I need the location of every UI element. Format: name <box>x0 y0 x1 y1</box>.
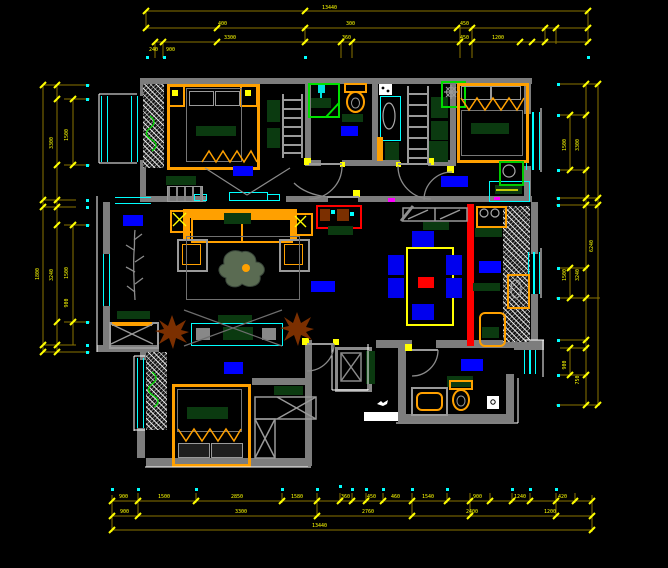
pillow-nw-b <box>215 91 240 106</box>
corner-rug <box>117 311 150 319</box>
bay-window-outer <box>101 96 108 162</box>
dimension-label: 900 <box>562 356 568 374</box>
living-window-west <box>103 254 110 306</box>
speaker-right <box>262 328 276 340</box>
wall-corridor-north-b <box>358 196 412 202</box>
dining-chair-east-b <box>446 278 462 298</box>
dimension-label: 2400 <box>466 509 478 515</box>
door-track-b <box>229 192 268 201</box>
dimension-label: 750 <box>575 371 581 389</box>
door-track-c <box>267 194 280 201</box>
corridor-marker <box>388 198 395 202</box>
room-label-kitchen <box>479 261 501 273</box>
dimension-label: 900 <box>166 47 175 53</box>
dining-chair-west-a <box>388 255 404 275</box>
lamp-nw-left <box>172 90 178 96</box>
north-marker-icon <box>377 400 388 406</box>
floor-plan-canvas: 1344040030045033003604501200240900150033… <box>0 0 668 568</box>
laundry-basin <box>380 96 401 141</box>
console-decor-a <box>320 209 330 221</box>
wall-bedroom1-south-b <box>286 196 312 202</box>
wall-corridor-north-a <box>310 196 328 202</box>
pillow-ne-b <box>491 86 521 100</box>
sideboard <box>401 206 467 221</box>
dimension-label: 1500 <box>562 136 568 154</box>
table-nw <box>167 186 203 202</box>
console-decor-b <box>337 209 349 221</box>
room-label-hallway <box>311 281 335 292</box>
corridor-rug <box>328 226 353 235</box>
toilet-main <box>345 84 366 112</box>
dimension-label: 1200 <box>544 509 556 515</box>
dimension-label: 900 <box>119 494 128 500</box>
stove <box>476 206 507 228</box>
dimension-label: 420 <box>558 494 567 500</box>
bath1-shelf <box>342 114 363 122</box>
dining-chair-east-a <box>446 255 462 275</box>
dimension-label: 1240 <box>514 494 526 500</box>
shower-bench <box>311 98 331 108</box>
blanket-s <box>187 407 228 419</box>
hinge-living <box>353 190 360 197</box>
hinge-bedroom2 <box>447 166 454 173</box>
bed-s-drawer-b <box>211 443 243 458</box>
dimension-label: 360 <box>341 494 350 500</box>
kitchen-window-b <box>534 252 540 294</box>
entry-mat <box>366 351 375 384</box>
dimension-label: 1800 <box>35 265 41 283</box>
sliding-door-bedroom1 <box>205 168 290 195</box>
sofa-cushion <box>224 213 251 224</box>
water-heater-panel <box>482 327 499 338</box>
dimension-label: 1500 <box>158 494 170 500</box>
hinge-entry <box>333 339 339 345</box>
hinge-bath2 <box>405 344 412 351</box>
wardrobe-s-shelf <box>274 386 303 395</box>
dimension-label: 400 <box>218 21 227 27</box>
dimension-label: 1500 <box>64 126 70 144</box>
dimension-label: 360 <box>342 35 351 41</box>
dimension-label: 3300 <box>49 134 55 152</box>
wall-bedroom3-west-lower <box>137 428 145 458</box>
tv-set <box>223 327 253 340</box>
hinge-bath1 <box>304 158 311 165</box>
kitchen-counter-item-b <box>473 283 500 291</box>
bay-window-inner <box>131 96 138 162</box>
pillow-ne-a <box>461 86 491 100</box>
dimension-label: 900 <box>64 294 70 312</box>
desk-chair-ne <box>499 161 524 186</box>
shelf-item-nw-a <box>267 100 280 122</box>
dimension-label: 900 <box>473 494 482 500</box>
hinge-tip-a <box>340 162 345 167</box>
dimension-label: 450 <box>460 35 469 41</box>
entry-landing <box>364 412 398 421</box>
dimension-label: 3300 <box>224 35 236 41</box>
hinge-tip-b <box>396 162 401 167</box>
wall-bath2-east <box>506 374 514 418</box>
wall-kitchen-east-lower <box>531 294 538 344</box>
room-label-bedroom-northeast <box>441 176 468 187</box>
coffee-table-pot <box>223 266 249 275</box>
dimension-label: 300 <box>346 21 355 27</box>
dining-chair-south <box>412 304 434 320</box>
room-label-bathroom-second <box>461 359 483 371</box>
dining-chair-west-b <box>388 278 404 298</box>
bath2-counter <box>447 376 473 387</box>
bedroom3-window-west <box>137 358 144 428</box>
room-label-bedroom-south <box>224 362 243 374</box>
hinge-closet <box>427 158 434 165</box>
wall-bath1-west <box>305 78 311 166</box>
dimension-label: 1580 <box>291 494 303 500</box>
dimension-label: 3300 <box>235 509 247 515</box>
bed-s-drawer-a <box>178 443 210 458</box>
dimension-label: 13440 <box>322 5 337 11</box>
bath2-basin <box>416 392 443 411</box>
floor-plant-left <box>155 315 189 349</box>
speaker-left <box>196 328 210 340</box>
desk-pen <box>494 197 500 200</box>
dimension-labels: 1344040030045033003604501200240900150033… <box>0 0 668 568</box>
wall-bath1-south-b <box>342 160 376 166</box>
kitchen-counter-item-a <box>475 228 502 237</box>
wardrobe-hatch-bedroom1 <box>143 84 164 168</box>
dimension-label: 450 <box>460 21 469 27</box>
wall-corridor-west <box>305 340 312 466</box>
corner-table-top <box>112 322 152 326</box>
dimension-label: 2850 <box>231 494 243 500</box>
closet-item-c <box>431 121 448 140</box>
washer-icon <box>379 84 392 95</box>
bath2-window-b <box>530 350 536 374</box>
desk-ne-top <box>495 185 522 194</box>
dimension-label: 900 <box>120 509 129 515</box>
wall-kitchen-east-upper <box>531 202 538 254</box>
kitchen-red-partition <box>467 204 474 346</box>
room-label-bathroom-main <box>341 126 358 136</box>
dimension-label: 3240 <box>575 266 581 284</box>
lamp-nw-right <box>245 90 251 96</box>
dimension-lines <box>0 0 668 568</box>
room-label-living-room <box>123 215 143 226</box>
corner-table <box>109 322 159 349</box>
towel-rail <box>377 137 383 161</box>
dining-centerpiece <box>418 277 434 288</box>
bedroom2-window-b <box>533 112 540 170</box>
hinge-bedroom3 <box>302 338 309 345</box>
paper-holder-icon <box>487 396 499 409</box>
pillow-nw-a <box>189 91 214 106</box>
dining-chair-north <box>412 231 434 247</box>
dimension-label: 3240 <box>49 266 55 284</box>
kitchen-sink <box>507 274 530 309</box>
dimension-label: 450 <box>367 494 376 500</box>
wardrobe-hatch-bedroom3 <box>146 352 167 430</box>
console-decor-d <box>350 212 354 216</box>
plan-line-art <box>0 0 668 568</box>
dimension-label: 2760 <box>362 509 374 515</box>
dimension-label: 1500 <box>562 266 568 284</box>
dimension-label: 1200 <box>492 35 504 41</box>
wall-living-west-upper <box>103 202 110 254</box>
sofa-arm-left <box>183 209 190 239</box>
dimension-label: 460 <box>391 494 400 500</box>
dimension-label: 6240 <box>589 237 595 255</box>
blanket-ne <box>471 123 509 134</box>
dimension-label: 1540 <box>422 494 434 500</box>
console-decor-c <box>331 210 335 214</box>
wall-bath2-west <box>398 348 406 418</box>
dimension-label: 13440 <box>312 523 327 529</box>
room-name-labels <box>0 0 668 568</box>
dimension-label: 240 <box>149 47 158 53</box>
closet-item-a <box>385 142 399 160</box>
blanket-nw <box>196 126 236 136</box>
branch-art <box>126 230 144 300</box>
rug-nw <box>166 176 196 185</box>
living-window-top <box>115 197 151 204</box>
sideboard-rug <box>423 222 449 230</box>
shelf-item-nw-b <box>267 128 280 148</box>
wall-bedroom3-north <box>252 378 312 385</box>
dimension-label: 1500 <box>64 264 70 282</box>
dimension-label: 3300 <box>575 136 581 154</box>
